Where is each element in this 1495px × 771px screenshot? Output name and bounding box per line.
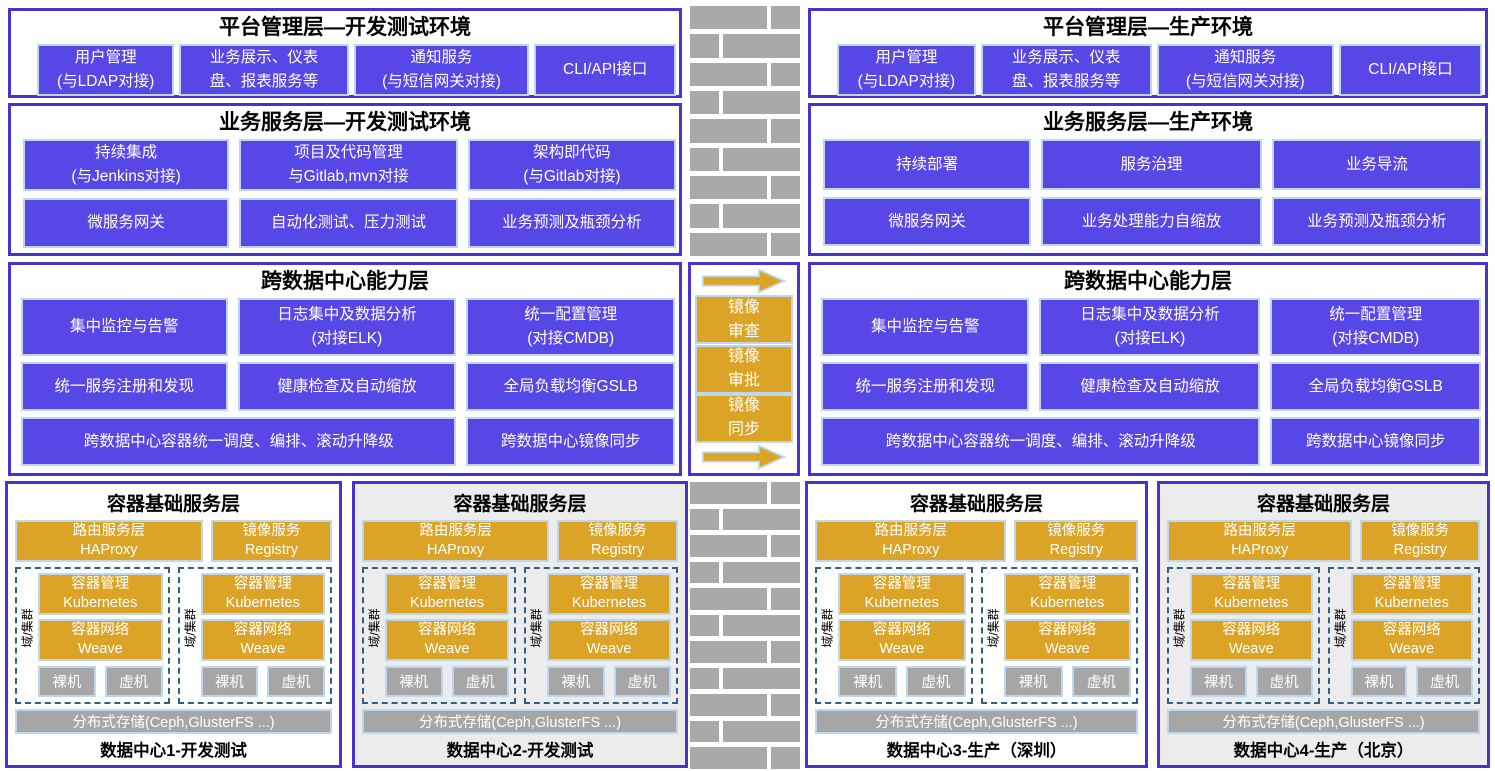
mirror-step-review: 镜像 审查 <box>695 295 793 344</box>
kubernetes-box: 容器管理 Kubernetes <box>547 573 671 615</box>
feature-box: 健康检查及自动缩放 <box>1039 362 1260 411</box>
brick-row <box>690 204 800 227</box>
weave-network-box: 容器网络 Weave <box>1190 619 1313 661</box>
routing-service-box: 路由服务层 HAProxy <box>15 520 203 562</box>
brick <box>690 176 767 199</box>
panel-title: 业务服务层—开发测试环境 <box>11 106 679 139</box>
brick-row <box>690 721 800 743</box>
kubernetes-box: 容器管理 Kubernetes <box>1004 573 1132 615</box>
vm-box: 虚机 <box>105 666 163 697</box>
feature-box-dashboard: 业务展示、仪表 盘、报表服务等 <box>981 44 1152 96</box>
brick <box>723 668 800 690</box>
brick <box>723 91 800 114</box>
brick <box>771 6 800 29</box>
feature-box: 跨数据中心容器统一调度、编排、滚动升降级 <box>21 417 456 466</box>
feature-box: 健康检查及自动缩放 <box>238 362 457 411</box>
brick-row <box>690 615 800 637</box>
right-arrow-icon <box>698 443 790 471</box>
feature-box-dashboard: 业务展示、仪表 盘、报表服务等 <box>179 44 348 96</box>
cluster-domain-label: 域/集群 <box>984 608 1001 647</box>
feature-box-notification: 通知服务 (与短信网关对接) <box>354 44 530 96</box>
datacenter-name: 数据中心1-开发测试 <box>15 734 332 761</box>
brick-row <box>690 747 800 769</box>
feature-box: 业务预测及瓶颈分析 <box>1272 197 1482 246</box>
feature-box: 统一服务注册和发现 <box>821 362 1029 411</box>
bare-metal-box: 裸机 <box>38 666 96 697</box>
weave-network-box: 容器网络 Weave <box>385 619 509 661</box>
datacenter-block: 容器基础服务层 路由服务层 HAProxy 镜像服务 Registry 域/集群… <box>1157 481 1490 768</box>
feature-box: 跨数据中心镜像同步 <box>466 417 675 466</box>
mirror-step-approve: 镜像 审批 <box>695 345 793 394</box>
brick <box>723 34 800 57</box>
brick <box>690 6 767 29</box>
feature-box: 业务处理能力自缩放 <box>1041 197 1262 246</box>
kubernetes-box: 容器管理 Kubernetes <box>1190 573 1313 615</box>
kubernetes-box: 容器管理 Kubernetes <box>38 573 163 615</box>
routing-service-box: 路由服务层 HAProxy <box>362 520 549 562</box>
datacenter-name: 数据中心2-开发测试 <box>362 734 678 761</box>
brick-row <box>690 148 800 171</box>
panel-platform-prod: 平台管理层—生产环境 用户管理 (与LDAP对接) 业务展示、仪表 盘、报表服务… <box>808 8 1488 98</box>
feature-box: 服务治理 <box>1041 139 1262 190</box>
panel-title: 平台管理层—生产环境 <box>811 11 1485 44</box>
brick <box>723 148 800 171</box>
brick-row <box>690 694 800 716</box>
brick-row <box>690 176 800 199</box>
brick <box>690 562 719 584</box>
weave-network-box: 容器网络 Weave <box>201 619 326 661</box>
mirror-step-sync: 镜像 同步 <box>695 394 793 443</box>
feature-box: 集中监控与告警 <box>21 298 228 356</box>
brick <box>690 233 767 256</box>
cluster-group: 域/集群 容器管理 Kubernetes 容器网络 Weave 裸机 虚机 <box>362 567 516 704</box>
routing-service-box: 路由服务层 HAProxy <box>815 520 1006 562</box>
brick-row <box>690 233 800 256</box>
datacenter-block: 容器基础服务层 路由服务层 HAProxy 镜像服务 Registry 域/集群… <box>805 481 1148 768</box>
cluster-domain-label: 域/集群 <box>366 608 383 647</box>
bare-metal-box: 裸机 <box>385 666 443 697</box>
brick <box>771 482 800 504</box>
brick <box>723 204 800 227</box>
brick <box>771 233 800 256</box>
brick <box>690 535 767 557</box>
feature-box: 架构即代码 (与Gitlab对接) <box>468 139 676 191</box>
feature-box: 集中监控与告警 <box>821 298 1029 356</box>
feature-box: 统一配置管理 (对接CMDB) <box>466 298 675 356</box>
brick-row <box>690 119 800 142</box>
feature-box: 微服务网关 <box>823 197 1031 246</box>
registry-service-box: 镜像服务 Registry <box>557 520 678 562</box>
cluster-group: 域/集群 容器管理 Kubernetes 容器网络 Weave 裸机 虚机 <box>524 567 678 704</box>
feature-box-cli-api: CLI/API接口 <box>1339 44 1482 96</box>
brick-wall-bottom <box>690 482 800 769</box>
panel-crossdc-right: 跨数据中心能力层 集中监控与告警 日志集中及数据分析 (对接ELK) 统一配置管… <box>808 262 1488 476</box>
panel-business-prod: 业务服务层—生产环境 持续部署 服务治理 业务导流 微服务网关 业务处理能力自缩… <box>808 103 1488 256</box>
cluster-group: 域/集群 容器管理 Kubernetes 容器网络 Weave 裸机 虚机 <box>178 567 333 704</box>
datacenter-title: 容器基础服务层 <box>1167 486 1480 520</box>
architecture-diagram: 平台管理层—开发测试环境 用户管理 (与LDAP对接) 业务展示、仪表 盘、报表… <box>0 0 1495 771</box>
brick-row <box>690 6 800 29</box>
distributed-storage-box: 分布式存储(Ceph,GlusterFS ...) <box>815 709 1138 734</box>
panel-platform-dev: 平台管理层—开发测试环境 用户管理 (与LDAP对接) 业务展示、仪表 盘、报表… <box>8 8 682 98</box>
registry-service-box: 镜像服务 Registry <box>1360 520 1480 562</box>
cluster-domain-label: 域/集群 <box>181 608 198 647</box>
brick-row <box>690 562 800 584</box>
panel-title: 业务服务层—生产环境 <box>811 106 1485 139</box>
brick-row <box>690 482 800 504</box>
brick <box>690 668 719 690</box>
feature-box-user-mgmt: 用户管理 (与LDAP对接) <box>837 44 976 96</box>
feature-box: 自动化测试、压力测试 <box>239 198 458 248</box>
weave-network-box: 容器网络 Weave <box>38 619 163 661</box>
feature-box: 统一服务注册和发现 <box>21 362 228 411</box>
brick <box>723 562 800 584</box>
datacenter-title: 容器基础服务层 <box>362 486 678 520</box>
datacenter-title: 容器基础服务层 <box>815 486 1138 520</box>
cluster-group: 域/集群 容器管理 Kubernetes 容器网络 Weave 裸机 虚机 <box>15 567 170 704</box>
feature-box: 日志集中及数据分析 (对接ELK) <box>238 298 457 356</box>
brick-row <box>690 641 800 663</box>
cluster-domain-label: 域/集群 <box>19 608 36 647</box>
datacenter-block: 容器基础服务层 路由服务层 HAProxy 镜像服务 Registry 域/集群… <box>352 481 688 768</box>
routing-service-box: 路由服务层 HAProxy <box>1167 520 1352 562</box>
brick-row <box>690 588 800 610</box>
feature-box: 微服务网关 <box>23 198 229 248</box>
distributed-storage-box: 分布式存储(Ceph,GlusterFS ...) <box>15 709 332 734</box>
brick <box>690 482 767 504</box>
kubernetes-box: 容器管理 Kubernetes <box>1351 573 1474 615</box>
brick <box>690 119 767 142</box>
feature-box: 业务预测及瓶颈分析 <box>468 198 676 248</box>
kubernetes-box: 容器管理 Kubernetes <box>385 573 509 615</box>
kubernetes-box: 容器管理 Kubernetes <box>838 573 966 615</box>
brick-row <box>690 91 800 114</box>
feature-box: 持续集成 (与Jenkins对接) <box>23 139 229 191</box>
feature-box: 日志集中及数据分析 (对接ELK) <box>1039 298 1260 356</box>
distributed-storage-box: 分布式存储(Ceph,GlusterFS ...) <box>1167 709 1480 734</box>
feature-box-cli-api: CLI/API接口 <box>534 44 676 96</box>
datacenter-block: 容器基础服务层 路由服务层 HAProxy 镜像服务 Registry 域/集群… <box>5 481 342 768</box>
brick-row <box>690 535 800 557</box>
vm-box: 虚机 <box>267 666 325 697</box>
bare-metal-box: 裸机 <box>1190 666 1247 697</box>
brick <box>771 535 800 557</box>
distributed-storage-box: 分布式存储(Ceph,GlusterFS ...) <box>362 709 678 734</box>
brick <box>771 176 800 199</box>
weave-network-box: 容器网络 Weave <box>547 619 671 661</box>
datacenter-name: 数据中心4-生产（北京） <box>1167 734 1480 761</box>
brick <box>690 721 719 743</box>
feature-box: 统一配置管理 (对接CMDB) <box>1270 298 1481 356</box>
bare-metal-box: 裸机 <box>1351 666 1408 697</box>
bare-metal-box: 裸机 <box>547 666 605 697</box>
weave-network-box: 容器网络 Weave <box>1004 619 1132 661</box>
brick <box>771 694 800 716</box>
bare-metal-box: 裸机 <box>201 666 259 697</box>
kubernetes-box: 容器管理 Kubernetes <box>201 573 326 615</box>
brick <box>690 204 719 227</box>
cluster-group: 域/集群 容器管理 Kubernetes 容器网络 Weave 裸机 虚机 <box>981 567 1139 704</box>
vm-box: 虚机 <box>614 666 672 697</box>
weave-network-box: 容器网络 Weave <box>838 619 966 661</box>
datacenter-title: 容器基础服务层 <box>15 486 332 520</box>
panel-business-dev: 业务服务层—开发测试环境 持续集成 (与Jenkins对接) 项目及代码管理 与… <box>8 103 682 256</box>
panel-title: 跨数据中心能力层 <box>811 265 1485 298</box>
brick-row <box>690 509 800 531</box>
brick <box>690 34 719 57</box>
cluster-group: 域/集群 容器管理 Kubernetes 容器网络 Weave 裸机 虚机 <box>815 567 973 704</box>
feature-box: 全局负载均衡GSLB <box>1270 362 1481 411</box>
vm-box: 虚机 <box>1416 666 1473 697</box>
feature-box: 跨数据中心容器统一调度、编排、滚动升降级 <box>821 417 1260 466</box>
brick <box>771 747 800 769</box>
brick <box>690 641 767 663</box>
brick-row <box>690 34 800 57</box>
brick <box>723 721 800 743</box>
panel-title: 平台管理层—开发测试环境 <box>11 11 679 44</box>
brick <box>690 588 767 610</box>
feature-box: 项目及代码管理 与Gitlab,mvn对接 <box>239 139 458 191</box>
mirror-flow-panel: 镜像 审查 镜像 审批 镜像 同步 <box>688 262 800 476</box>
brick <box>723 509 800 531</box>
cluster-domain-label: 域/集群 <box>528 608 545 647</box>
datacenter-name: 数据中心3-生产（深圳） <box>815 734 1138 761</box>
registry-service-box: 镜像服务 Registry <box>211 520 332 562</box>
brick <box>690 509 719 531</box>
brick <box>690 63 767 86</box>
feature-box-notification: 通知服务 (与短信网关对接) <box>1157 44 1334 96</box>
brick <box>690 747 767 769</box>
brick <box>771 119 800 142</box>
brick <box>723 615 800 637</box>
brick-wall-top <box>690 6 800 256</box>
brick <box>690 694 767 716</box>
panel-crossdc-left: 跨数据中心能力层 集中监控与告警 日志集中及数据分析 (对接ELK) 统一配置管… <box>8 262 682 476</box>
vm-box: 虚机 <box>1256 666 1313 697</box>
feature-box: 业务导流 <box>1272 139 1482 190</box>
brick <box>771 588 800 610</box>
brick <box>771 63 800 86</box>
cluster-domain-label: 域/集群 <box>819 608 836 647</box>
panel-title: 跨数据中心能力层 <box>11 265 679 298</box>
brick <box>690 615 719 637</box>
feature-box: 跨数据中心镜像同步 <box>1270 417 1481 466</box>
bare-metal-box: 裸机 <box>838 666 897 697</box>
cluster-group: 域/集群 容器管理 Kubernetes 容器网络 Weave 裸机 虚机 <box>1167 567 1320 704</box>
feature-box: 持续部署 <box>823 139 1031 190</box>
cluster-domain-label: 域/集群 <box>1171 608 1188 647</box>
brick-row <box>690 668 800 690</box>
registry-service-box: 镜像服务 Registry <box>1014 520 1138 562</box>
brick <box>690 148 719 171</box>
right-arrow-icon <box>698 267 790 295</box>
brick <box>771 641 800 663</box>
bare-metal-box: 裸机 <box>1004 666 1063 697</box>
weave-network-box: 容器网络 Weave <box>1351 619 1474 661</box>
brick-row <box>690 63 800 86</box>
feature-box-user-mgmt: 用户管理 (与LDAP对接) <box>37 44 174 96</box>
feature-box: 全局负载均衡GSLB <box>466 362 675 411</box>
vm-box: 虚机 <box>1072 666 1131 697</box>
cluster-group: 域/集群 容器管理 Kubernetes 容器网络 Weave 裸机 虚机 <box>1328 567 1481 704</box>
cluster-domain-label: 域/集群 <box>1331 608 1348 647</box>
vm-box: 虚机 <box>452 666 510 697</box>
vm-box: 虚机 <box>906 666 965 697</box>
brick <box>690 91 719 114</box>
